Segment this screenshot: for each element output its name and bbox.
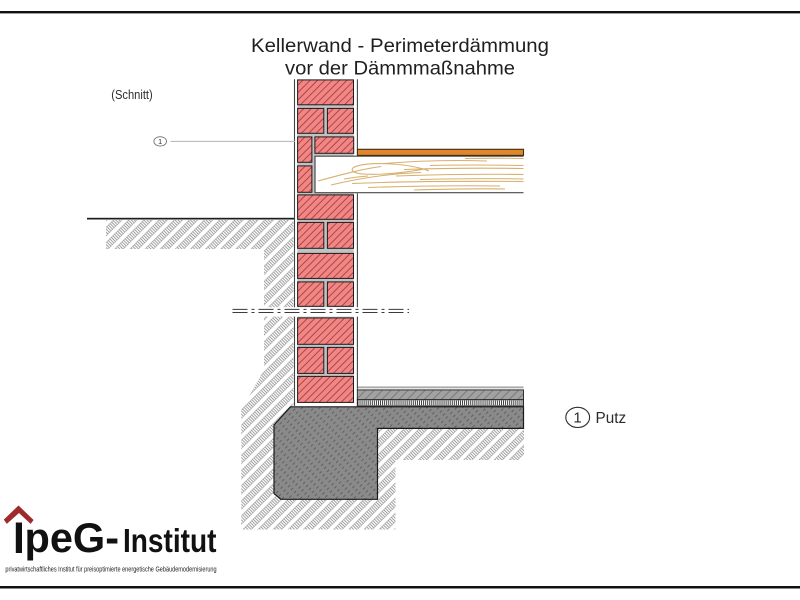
svg-text:Institut: Institut [123,522,217,559]
svg-text:1: 1 [158,137,162,146]
svg-text:Putz: Putz [596,410,627,427]
svg-text:(Schnitt): (Schnitt) [111,88,153,102]
svg-text:1: 1 [573,410,581,427]
svg-text:vor der Dämmmaßnahme: vor der Dämmmaßnahme [285,58,515,80]
svg-text:Kellerwand - Perimeterdämmung: Kellerwand - Perimeterdämmung [251,35,549,57]
svg-text:peG-: peG- [25,514,120,561]
svg-text:privatwirtschaftliches Institu: privatwirtschaftliches Institut für prei… [5,564,216,573]
